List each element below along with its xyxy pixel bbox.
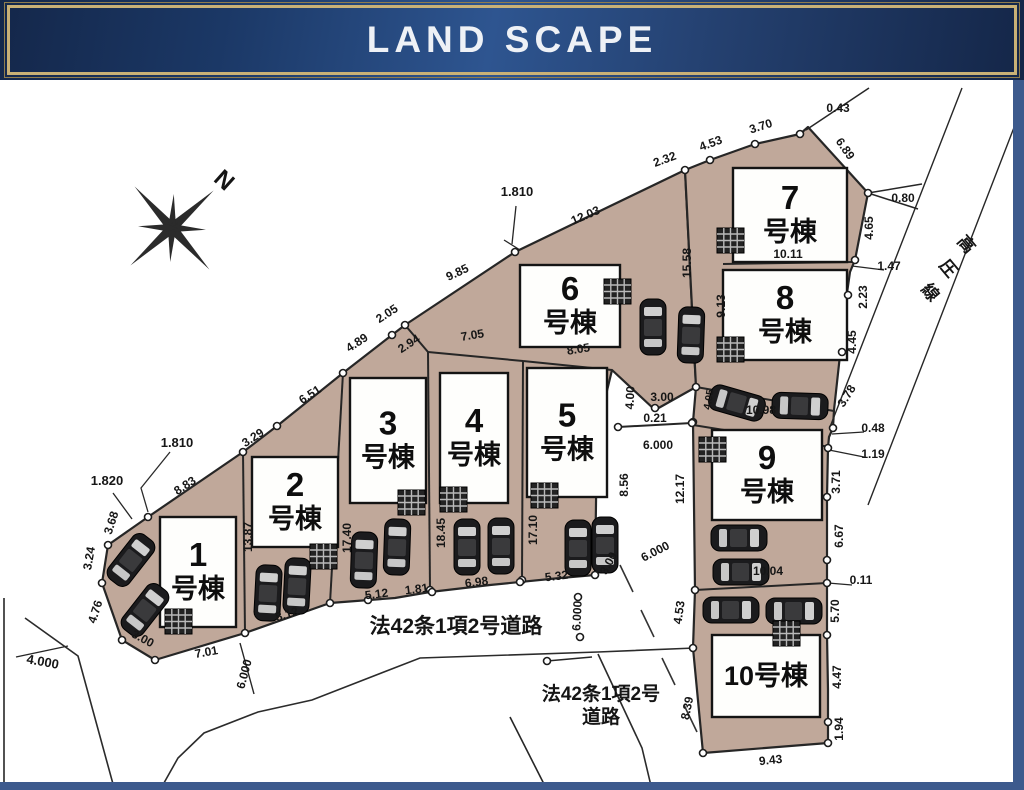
- dimension-label: 6.67: [832, 524, 846, 548]
- car-icon: [454, 519, 480, 575]
- dimension-label: 4.53: [670, 600, 687, 625]
- car-icon: [772, 392, 829, 420]
- vertex-marker: [825, 719, 832, 726]
- vertex-marker: [544, 658, 551, 665]
- building-6-suffix: 号棟: [543, 308, 598, 338]
- vertex-marker: [797, 131, 804, 138]
- plot-boundary-line: [510, 717, 547, 790]
- car-icon: [383, 519, 411, 576]
- building-10: 10号棟: [712, 635, 820, 717]
- dimension-label: 10.04: [753, 564, 783, 578]
- building-7-suffix: 号棟: [763, 217, 818, 247]
- dimension-label: 9.43: [758, 752, 783, 768]
- building-5-suffix: 号棟: [540, 435, 595, 465]
- road-label: 道路: [582, 705, 621, 728]
- grate-icon: [398, 490, 425, 515]
- vertex-marker: [830, 425, 837, 432]
- dimension-label: 3.24: [80, 545, 98, 571]
- car-icon: [350, 532, 378, 589]
- grate-icon: [773, 621, 800, 646]
- dimension-label: 1.19: [861, 447, 885, 461]
- dimension-label: 4.00: [622, 385, 637, 409]
- grate-icon: [165, 609, 192, 634]
- plot-boundary-line: [832, 432, 864, 434]
- vertex-marker: [865, 190, 872, 197]
- dimension-label: 10.11: [773, 247, 803, 261]
- vertex-marker: [99, 580, 106, 587]
- dimension-label: 10.98: [746, 403, 776, 417]
- dimension-label: 1.94: [832, 717, 846, 741]
- vertex-marker: [615, 424, 622, 431]
- dimension-label: 4.000: [25, 651, 60, 671]
- dimension-label: 8.39: [678, 695, 697, 721]
- vertex-marker: [575, 594, 582, 601]
- dimension-label: 15.58: [680, 248, 694, 278]
- dimension-label: 5.32: [544, 568, 569, 585]
- vertex-marker: [852, 257, 859, 264]
- building-4-suffix: 号棟: [447, 440, 502, 470]
- road-center-dash: [662, 658, 675, 685]
- car-icon: [766, 598, 822, 624]
- dimension-label: 0.11: [850, 573, 873, 587]
- car-icon: [703, 597, 759, 623]
- vertex-marker: [689, 420, 696, 427]
- building-8-suffix: 号棟: [758, 317, 813, 347]
- dimension-label: 9.85: [444, 261, 471, 284]
- vertex-marker: [682, 167, 689, 174]
- dimension-label: 4.47: [830, 665, 844, 689]
- vertex-marker: [752, 141, 759, 148]
- building-9: 9号棟: [712, 430, 822, 520]
- road-center-dash: [620, 565, 633, 592]
- dimension-label: 3.71: [829, 470, 843, 494]
- dimension-label: 0.21: [643, 411, 667, 425]
- dimension-label: 0.48: [861, 421, 885, 435]
- dimension-label: 8.56: [617, 473, 631, 497]
- vertex-marker: [690, 645, 697, 652]
- vertex-marker: [845, 292, 852, 299]
- dimension-label: 2.32: [651, 149, 678, 170]
- vertex-marker: [825, 445, 832, 452]
- car-icon: [677, 307, 705, 364]
- dimension-label: 4.45: [845, 330, 859, 354]
- car-icon: [711, 525, 767, 551]
- dimension-label: 1.810: [501, 184, 534, 199]
- building-3-suffix: 号棟: [361, 443, 416, 473]
- dimension-label: 17.10: [526, 515, 540, 545]
- grate-icon: [717, 228, 744, 253]
- compass-rose: [127, 183, 216, 272]
- dimension-label: 13.87: [241, 522, 255, 552]
- north-label: N: [209, 165, 240, 197]
- grate-icon: [717, 337, 744, 362]
- dimension-label: 17.40: [340, 523, 354, 553]
- dimension-label: 5.70: [828, 599, 842, 623]
- car-icon: [565, 520, 591, 576]
- dimension-label: 6.000: [643, 438, 673, 452]
- building-8-number: 8: [776, 279, 794, 316]
- dimension-label: 3.00: [650, 390, 674, 404]
- vertex-marker: [512, 249, 519, 256]
- road-edge-line: [25, 618, 113, 784]
- vertex-marker: [824, 557, 831, 564]
- dimension-label: 0.43: [826, 101, 850, 115]
- dimension-label: 3.70: [747, 116, 774, 137]
- vertex-marker: [242, 630, 249, 637]
- road-label: 法42条1項2号道路: [370, 614, 544, 638]
- building-5: 5号棟: [527, 368, 607, 497]
- building-3-number: 3: [379, 405, 397, 442]
- plot-boundary-line: [512, 206, 516, 244]
- road-center-dash: [641, 610, 654, 637]
- vertex-marker: [692, 587, 699, 594]
- vertex-marker: [402, 322, 409, 329]
- page-title: LAND SCAPE: [367, 19, 658, 61]
- building-5-number: 5: [558, 397, 576, 434]
- plot-boundary-line: [868, 112, 1020, 505]
- vertex-marker: [274, 423, 281, 430]
- grate-icon: [531, 483, 558, 508]
- dimension-label: 18.45: [434, 518, 448, 548]
- dimension-label: 1.820: [91, 473, 124, 488]
- road-label: 高: [953, 231, 979, 257]
- vertex-marker: [592, 572, 599, 579]
- grate-icon: [310, 544, 337, 569]
- vertex-marker: [824, 580, 831, 587]
- vertex-marker: [693, 384, 700, 391]
- building-2-number: 2: [286, 466, 304, 503]
- road-edge-line: [141, 452, 170, 512]
- plot-boundary-line: [829, 450, 864, 457]
- site-plan-svg: N 1号棟2号棟3号棟4号棟5号棟6号棟7号棟8号棟9号棟10号棟: [0, 0, 1024, 790]
- building-6: 6号棟: [520, 265, 620, 347]
- car-icon: [488, 518, 514, 574]
- grate-icon: [604, 279, 631, 304]
- banner-gold-frame: LAND SCAPE: [7, 5, 1017, 75]
- dimension-label: 4.65: [862, 216, 876, 240]
- vertex-marker: [824, 632, 831, 639]
- vertex-marker: [577, 634, 584, 641]
- road-label: 圧: [935, 256, 960, 281]
- vertex-marker: [340, 370, 347, 377]
- vertex-marker: [152, 657, 159, 664]
- vertex-marker: [145, 514, 152, 521]
- page-frame-bottom: [0, 782, 1024, 790]
- vertex-marker: [429, 589, 436, 596]
- dimension-label: 5.12: [364, 586, 389, 603]
- dimension-label: 1.47: [877, 259, 901, 273]
- vertex-marker: [707, 157, 714, 164]
- vertex-marker: [517, 579, 524, 586]
- dimension-label: 7.01: [194, 643, 220, 661]
- plot-boundary-line: [522, 361, 523, 580]
- road-label: 線: [917, 279, 943, 305]
- building-2-suffix: 号棟: [268, 504, 323, 534]
- dimension-label: 4.89: [343, 330, 370, 355]
- vertex-marker: [119, 637, 126, 644]
- vertex-marker: [825, 740, 832, 747]
- vertex-marker: [327, 600, 334, 607]
- building-3: 3号棟: [350, 378, 426, 503]
- road-label: 法42条1項2号: [542, 682, 660, 705]
- page-frame-right: [1013, 78, 1024, 790]
- building-9-suffix: 号棟: [740, 477, 795, 507]
- vertex-marker: [389, 332, 396, 339]
- dimension-label: 6.000: [639, 538, 672, 564]
- grate-icon: [699, 437, 726, 462]
- title-banner: LAND SCAPE: [0, 0, 1024, 80]
- dimension-label: 0.80: [891, 191, 915, 205]
- plot-boundary-line: [828, 583, 852, 585]
- building-1-suffix: 号棟: [171, 574, 226, 604]
- dimension-label: 4.76: [85, 598, 106, 625]
- dimension-label: 3.78: [834, 382, 858, 410]
- building-10-number: 10号棟: [724, 661, 809, 691]
- dimension-label: 12.17: [673, 474, 687, 504]
- dimension-label: 2.23: [856, 285, 870, 309]
- dimension-label: 6.000: [569, 600, 585, 631]
- dimension-label: 2.05: [373, 301, 400, 326]
- dimension-label: 9.13: [714, 294, 728, 318]
- dimension-label: 1.810: [161, 435, 194, 450]
- building-6-number: 6: [561, 270, 579, 307]
- grate-icon: [440, 487, 467, 512]
- dimension-label: 4.53: [697, 133, 724, 154]
- dimension-label: 3.68: [101, 509, 122, 536]
- plot-boundary-line: [547, 657, 592, 661]
- building-9-number: 9: [758, 439, 776, 476]
- car-icon: [640, 299, 666, 355]
- dimension-label: 6.98: [464, 574, 489, 591]
- dimension-label: 1.81: [404, 581, 429, 598]
- building-2: 2号棟: [252, 457, 338, 547]
- building-4: 4号棟: [440, 373, 508, 503]
- building-7-number: 7: [781, 179, 799, 216]
- vertex-marker: [700, 750, 707, 757]
- building-4-number: 4: [465, 402, 484, 439]
- building-1-number: 1: [189, 536, 207, 573]
- vertex-marker: [105, 542, 112, 549]
